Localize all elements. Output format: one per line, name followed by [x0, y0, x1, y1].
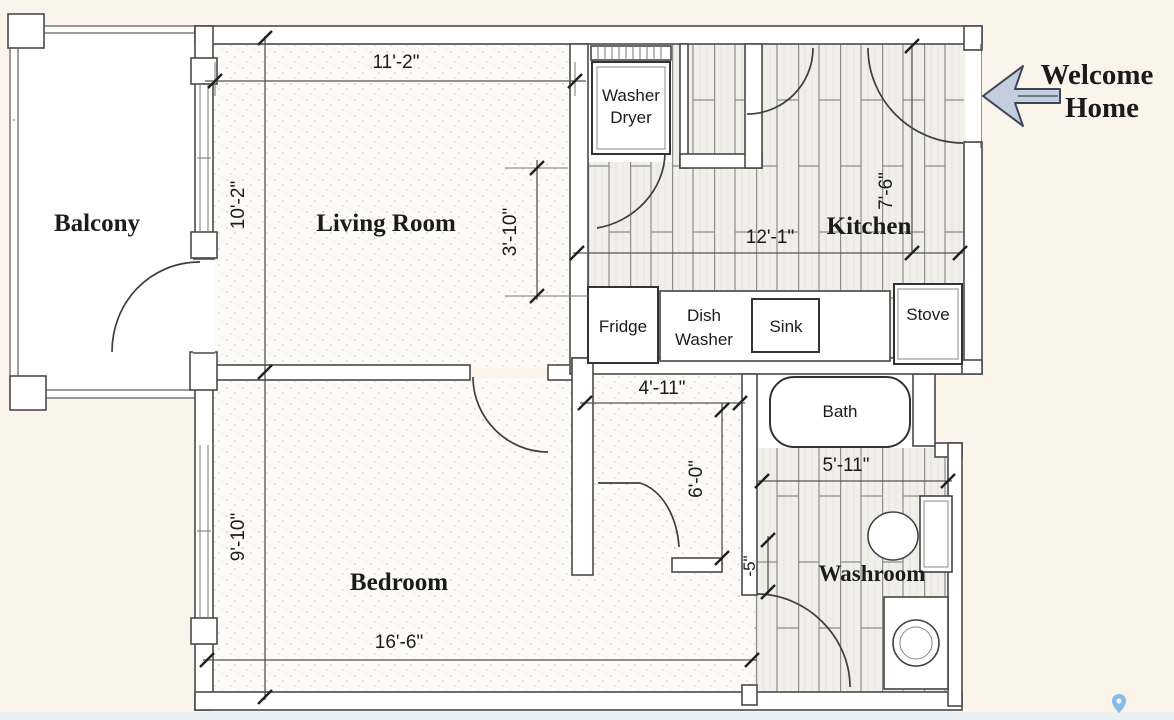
bedroom-label: Bedroom: [350, 569, 448, 596]
dishwasher-label-line2: Washer: [675, 330, 733, 349]
sink-label: Sink: [769, 317, 803, 336]
balcony-bottom-wall: [45, 390, 195, 398]
dim-living-height: 10'-2": [228, 181, 249, 229]
balcony-corner-post-bottom: [10, 376, 46, 410]
entry-closet-wall-right: [745, 44, 762, 168]
dim-living-width: 11'-2": [373, 52, 420, 73]
entry-door-opening: [966, 50, 981, 142]
window-post-1: [191, 58, 217, 84]
living-bedroom-wall: [195, 365, 470, 380]
balcony-top-wall: [43, 26, 195, 33]
dim-kitchen-width: 12'-1": [746, 227, 794, 248]
bedroom-floor: [205, 378, 755, 694]
living-room-floor: [205, 44, 572, 368]
window-post-4: [191, 618, 217, 644]
hallway-bottom-wall: [672, 558, 722, 572]
kitchen-label: Kitchen: [827, 213, 912, 240]
bottom-wall: [195, 692, 962, 710]
living-room-label: Living Room: [316, 210, 456, 237]
bottom-strip: [0, 712, 1174, 720]
floor-plan-screenshot: 11'-2" 10'-2" 9'-10" 3'-10" 12'-1" 7'-6"…: [0, 0, 1174, 720]
welcome-text-line1: Welcome: [1041, 59, 1154, 91]
dim-closet-height: 3'-10": [500, 208, 521, 256]
window-post-2: [191, 232, 217, 258]
fridge-label: Fridge: [599, 317, 647, 336]
dishwasher-label-line1: Dish: [687, 306, 721, 325]
dim-bedroom-height: 9'-10": [228, 513, 249, 561]
dim-kitchen-height: 7'-6": [876, 172, 897, 210]
bath-right-wall: [913, 374, 935, 446]
living-kitchen-wall: [570, 44, 588, 374]
balcony-door-opening: [193, 259, 215, 353]
entry-closet-wall-left: [680, 44, 688, 168]
bath-label: Bath: [823, 402, 858, 421]
top-wall: [195, 26, 982, 44]
washer-closet-vent: [591, 46, 671, 60]
right-wall-below-entry: [964, 142, 982, 374]
floorplan-canvas: 11'-2" 10'-2" 9'-10" 3'-10" 12'-1" 7'-6"…: [0, 0, 1174, 720]
hallway-left-wall: [572, 358, 593, 575]
window-post-3: [190, 352, 217, 390]
balcony-left-wall: [10, 45, 18, 395]
dim-washroom-width: 5'-11": [823, 455, 870, 476]
dim-hall-height: 6'-0": [686, 460, 707, 498]
washroom-left-wall-stub: [742, 685, 757, 705]
balcony-label: Balcony: [54, 210, 141, 237]
dim-washroom-door: -5": [740, 555, 759, 576]
washroom-label: Washroom: [819, 561, 926, 586]
dim-bedroom-width: 16'-6": [375, 632, 423, 653]
welcome-text-line2: Home: [1065, 92, 1139, 124]
right-wall-above-entry: [964, 26, 982, 50]
toilet: [868, 512, 918, 560]
washer-label-line2: Dryer: [610, 108, 652, 127]
balcony-corner-post-top: [8, 14, 44, 48]
dim-hall-width: 4'-11": [639, 378, 686, 399]
washer-label-line1: Washer: [602, 86, 660, 105]
stove-label: Stove: [906, 305, 949, 324]
right-wall-lower: [948, 443, 962, 706]
stove: [894, 284, 962, 364]
